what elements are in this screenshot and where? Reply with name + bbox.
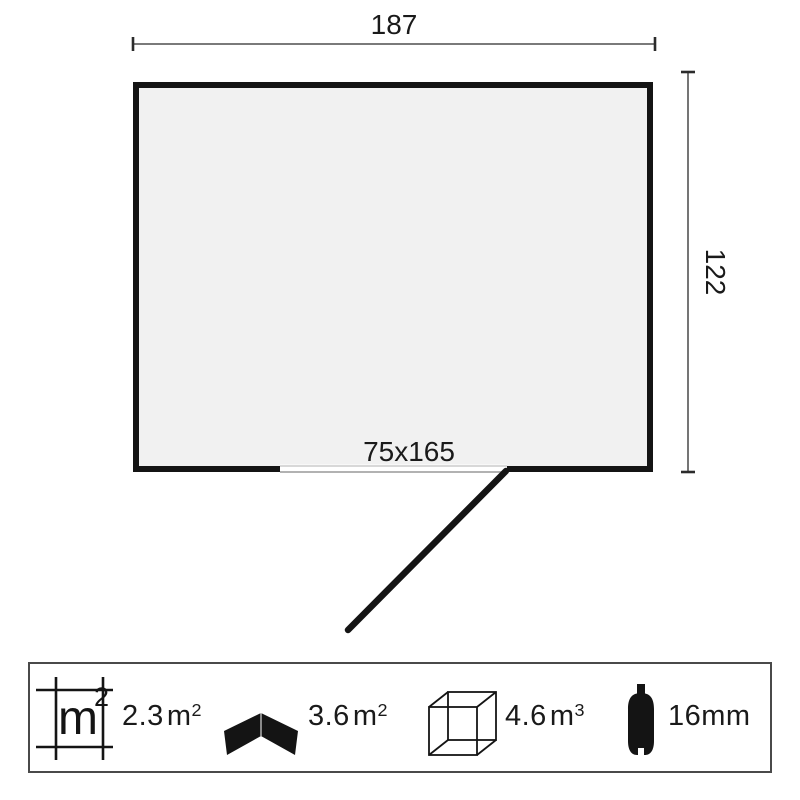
floor-area-value: 2.3m2 [122,700,202,733]
roof-area-value: 3.6m2 [308,700,388,733]
width-dimension-label: 187 [371,9,418,40]
door-size-label: 75x165 [363,436,455,467]
roof-area-unit-sup: 2 [378,700,389,720]
roof-chevron-icon [220,712,302,760]
volume-cube-icon [428,688,498,758]
floor-plan-page: 187 122 75x165 m 2 2.3m2 [0,0,800,800]
floor-plan-drawing: 187 122 75x165 [0,0,800,660]
height-dimension: 122 [681,72,731,472]
floor-area-icon-unit-base: m [58,692,98,745]
volume-number: 4.6 [505,700,547,732]
volume-unit: m [550,700,575,732]
roof-area-unit: m [353,700,378,732]
floor-area-icon-unit-sup: 2 [94,682,109,712]
roof-area-number: 3.6 [308,700,350,732]
floor-area-unit: m [167,700,192,732]
volume-unit-sup: 3 [575,700,586,720]
wall-thickness-value: 16mm [668,700,751,733]
height-dimension-label: 122 [700,249,731,296]
width-dimension: 187 [133,9,655,51]
wall-thickness-number: 16 [668,700,701,732]
legend-panel: m 2 2.3m2 3.6m2 4.6m3 [28,662,772,773]
floor-area-unit-sup: 2 [192,700,203,720]
floor-area-number: 2.3 [122,700,164,732]
door-swing-line [348,471,506,630]
shed-outline [136,85,650,469]
wall-board-profile-icon [624,683,658,759]
volume-value: 4.6m3 [505,700,585,733]
wall-thickness-unit: mm [701,700,750,732]
floor-area-grid-icon: m 2 [36,666,120,762]
